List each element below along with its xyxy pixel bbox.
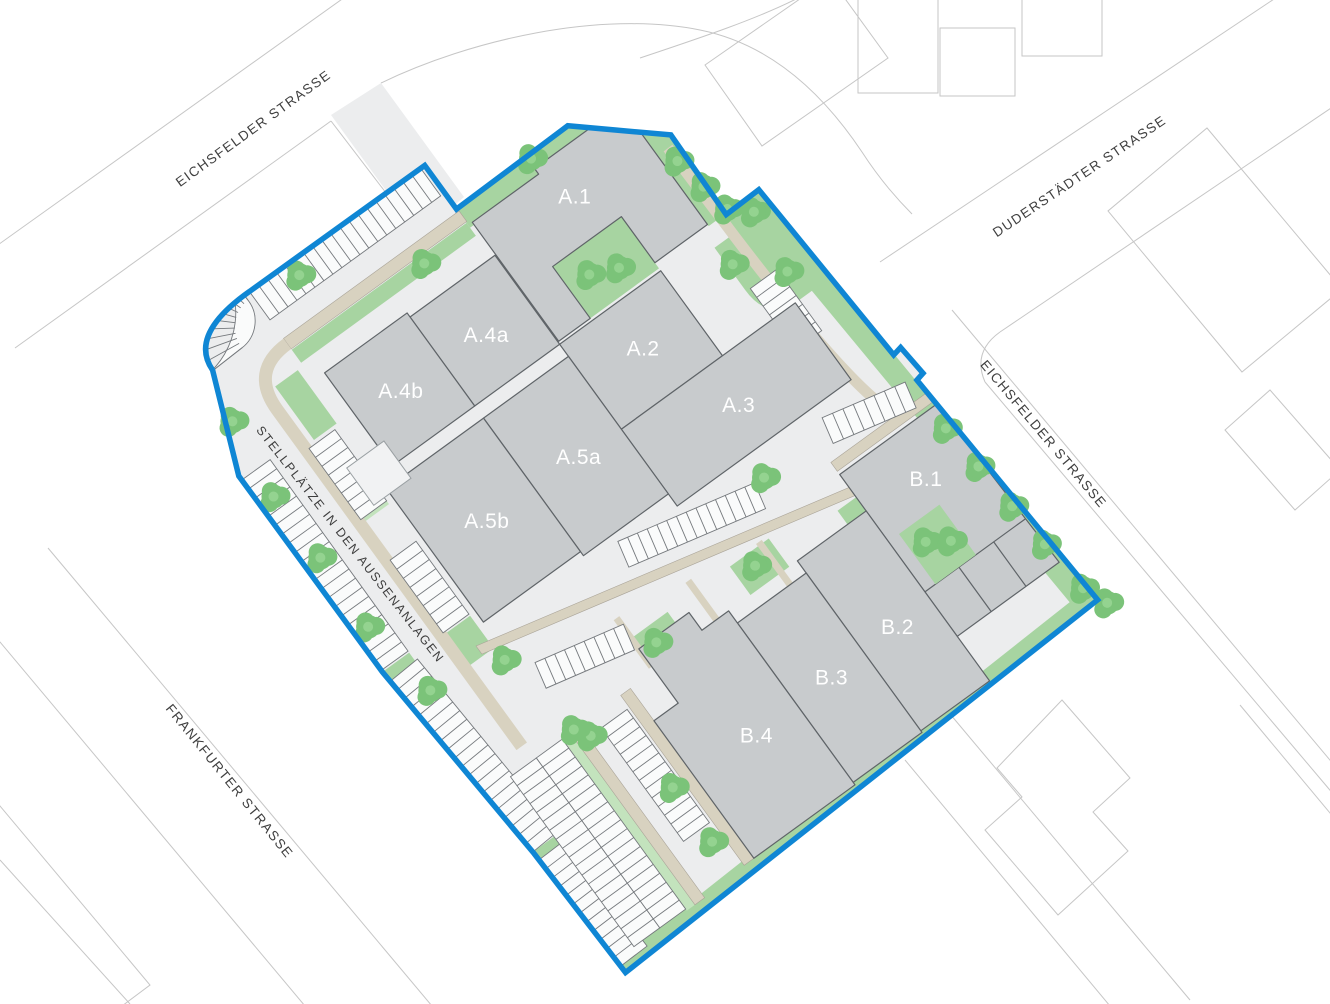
parcel-line (0, 800, 150, 1004)
building-label-b3: B.3 (815, 666, 848, 689)
street-line (880, 0, 1330, 262)
neighbour-building (1225, 390, 1330, 510)
street-label-eichsfelder-nw: EICHSFELDER STRASSE (173, 67, 334, 190)
street-label-duderstaedter: DUDERSTÄDTER STRASSE (990, 113, 1169, 241)
building-label-b4: B.4 (740, 725, 773, 748)
parcel-line (0, 860, 130, 1004)
street-label-frankfurter: FRANKFURTER STRASSE (163, 701, 297, 861)
neighbour-building (858, 0, 938, 93)
building-label-a5b: A.5b (464, 510, 509, 533)
parcel-line (1240, 705, 1330, 825)
street-line (640, 0, 802, 58)
parcel-line (905, 760, 1110, 1004)
street-line (1000, 102, 1330, 332)
neighbour-building (705, 0, 888, 146)
site-plan: A.1 A.2 A.3 A.4a A.4b A.5a A.5b B.1 B.2 … (0, 0, 1330, 1004)
building-label-a4b: A.4b (378, 380, 423, 403)
site-plan-svg: A.1 A.2 A.3 A.4a A.4b A.5a A.5b B.1 B.2 … (0, 0, 1330, 1004)
building-label-a4a: A.4a (464, 324, 509, 347)
street-line (0, 0, 352, 247)
building-label-a2: A.2 (627, 337, 660, 360)
parcel-line (940, 702, 1190, 1000)
neighbour-building (1108, 128, 1330, 372)
building-label-a1: A.1 (558, 185, 591, 208)
building-label-a5a: A.5a (556, 446, 601, 469)
neighbour-building (1022, 0, 1102, 56)
building-label-b1: B.1 (909, 468, 942, 491)
building-label-b2: B.2 (881, 616, 914, 639)
neighbour-building (940, 28, 1015, 96)
building-label-a3: A.3 (722, 394, 755, 417)
site: A.1 A.2 A.3 A.4a A.4b A.5a A.5b B.1 B.2 … (101, 0, 1130, 985)
